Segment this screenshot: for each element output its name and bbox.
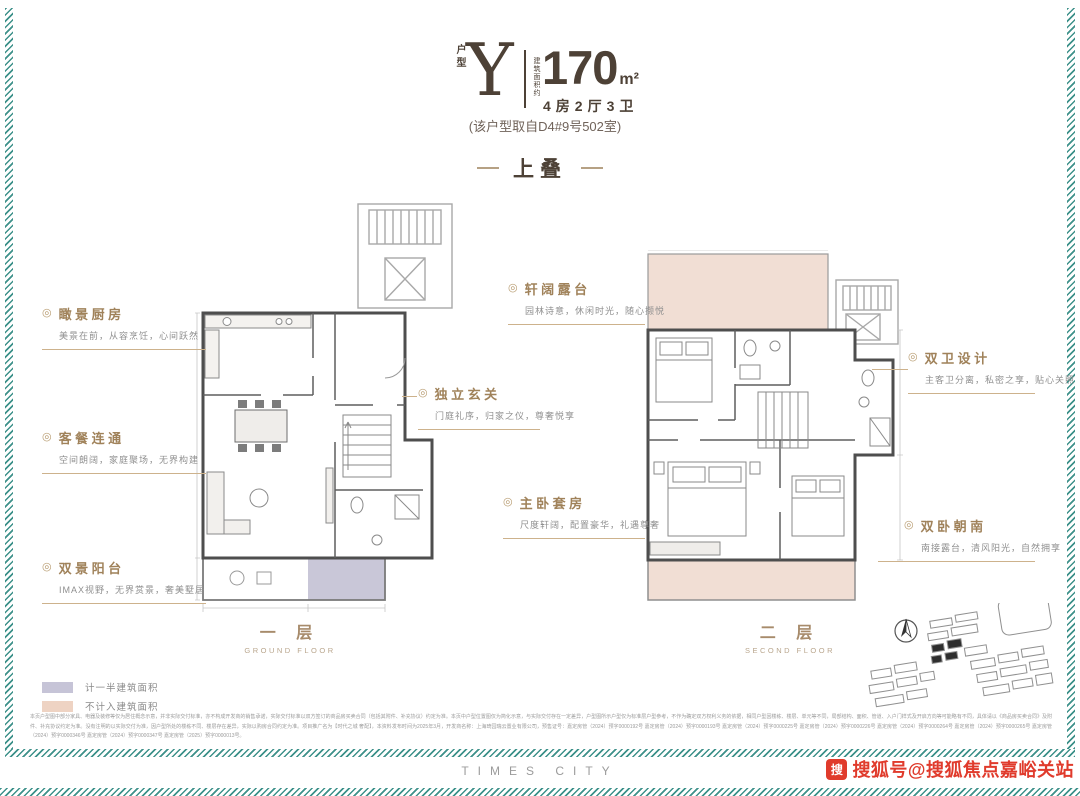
- callout-desc: 园林诗意，休闲时光，随心撷悦: [508, 304, 645, 317]
- callout-terrace: ◎ 轩阔露台 园林诗意，休闲时光，随心撷悦: [508, 279, 645, 325]
- section-title: 上叠: [0, 153, 1080, 183]
- site-location-map: [858, 603, 1063, 708]
- callout-master-suite: ◎ 主卧套房 尺度轩阔，配置豪华，礼遇尊奢: [503, 493, 645, 539]
- callout-title: 客餐连通: [59, 428, 125, 447]
- callout-bullet-icon: ◎: [418, 388, 428, 399]
- title-dash-right: [581, 167, 603, 169]
- callout-bullet-icon: ◎: [42, 432, 52, 443]
- legend-row: 不计入建筑面积: [42, 699, 159, 713]
- callout-title: 双卧朝南: [921, 516, 987, 535]
- second-floor-plan: [640, 250, 905, 605]
- floor-label-zh: 一 层: [200, 619, 380, 643]
- callout-desc: 尺度轩阔，配置豪华，礼遇尊奢: [503, 518, 645, 531]
- area-figure: 170 m²: [542, 44, 639, 91]
- unit-type-letter: Y: [466, 34, 514, 106]
- callout-bullet-icon: ◎: [503, 497, 513, 508]
- callout-title: 双卫设计: [925, 348, 991, 367]
- callout-desc: 主客卫分离，私密之享，贴心关照: [908, 373, 1035, 386]
- section-title-text: 上叠: [513, 153, 567, 183]
- watermark-text: 搜狐号@搜狐焦点嘉峪关站: [852, 756, 1074, 782]
- callout-title: 双景阳台: [59, 558, 125, 577]
- floor-label-en: SECOND FLOOR: [700, 646, 880, 655]
- area-unit: m²: [619, 71, 639, 89]
- callout-desc: IMAX视野，无界赏景，奢美墅居: [42, 583, 206, 596]
- floor-label-en: GROUND FLOOR: [200, 646, 380, 655]
- callout-bullet-icon: ◎: [904, 520, 914, 531]
- callout-desc: 空间朗阔，家庭聚场，无界构建: [42, 453, 206, 466]
- watermark: 搜 搜狐号@搜狐焦点嘉峪关站: [826, 756, 1074, 782]
- floorplan-poster: 户型 Y 建筑面积约 170 m² 4房2厅3卫 (该户型取自D4#9号502室…: [0, 0, 1080, 796]
- ground-floor-label: 一 层 GROUND FLOOR: [200, 619, 380, 655]
- legend-swatch-excluded: [42, 701, 73, 712]
- header-divider: [524, 50, 526, 108]
- area-value: 170: [542, 44, 617, 91]
- sohu-logo-icon: 搜: [826, 759, 847, 780]
- callout-title: 独立玄关: [435, 384, 501, 403]
- callout-bullet-icon: ◎: [42, 308, 52, 319]
- rooms-summary: 4房2厅3卫: [543, 96, 638, 116]
- title-dash-left: [477, 167, 499, 169]
- unit-source-note: (该户型取自D4#9号502室): [415, 116, 675, 135]
- callout-title: 瞰景厨房: [59, 304, 125, 323]
- legend-label: 不计入建筑面积: [85, 699, 159, 713]
- legend-swatch-half-counted: [42, 682, 73, 693]
- callout-desc: 南接露台，清风阳光，自然拥享: [904, 541, 1035, 554]
- area-prefix-label: 建筑面积约: [531, 57, 541, 97]
- callout-balcony: ◎ 双景阳台 IMAX视野，无界赏景，奢美墅居: [42, 558, 206, 604]
- callout-bullet-icon: ◎: [908, 352, 918, 363]
- floor-label-zh: 二 层: [700, 619, 880, 643]
- callout-desc: 门庭礼序，归家之仪，尊奢悦享: [418, 409, 540, 422]
- legal-disclaimer: 本页户型图中部分家具、电器及装修等仅为居住概念示意，并非实际交付标准，亦不构成开…: [30, 713, 1052, 742]
- unit-type-label: 户型: [452, 44, 467, 70]
- compass-icon: [895, 619, 917, 642]
- callout-kitchen: ◎ 瞰景厨房 美景在前，从容烹饪，心间跃然: [42, 304, 206, 350]
- legend-label: 计一半建筑面积: [85, 680, 159, 694]
- striped-border-edge: [0, 788, 1080, 796]
- callout-dining: ◎ 客餐连通 空间朗阔，家庭聚场，无界构建: [42, 428, 206, 474]
- callout-leader-line: [402, 396, 417, 397]
- second-floor-label: 二 层 SECOND FLOOR: [700, 619, 880, 655]
- callout-south-bedrooms: ◎ 双卧朝南 南接露台，清风阳光，自然拥享: [878, 516, 1035, 562]
- callout-bullet-icon: ◎: [508, 283, 518, 294]
- striped-border-left: [5, 8, 13, 756]
- legend-row: 计一半建筑面积: [42, 680, 159, 694]
- callout-title: 轩阔露台: [525, 279, 591, 298]
- callout-bathrooms: ◎ 双卫设计 主客卫分离，私密之享，贴心关照: [908, 348, 1035, 394]
- callout-leader-line: [872, 369, 908, 370]
- callout-title: 主卧套房: [520, 493, 586, 512]
- callout-desc: 美景在前，从容烹饪，心间跃然: [42, 329, 206, 342]
- callout-foyer: ◎ 独立玄关 门庭礼序，归家之仪，尊奢悦享: [418, 384, 540, 430]
- callout-bullet-icon: ◎: [42, 562, 52, 573]
